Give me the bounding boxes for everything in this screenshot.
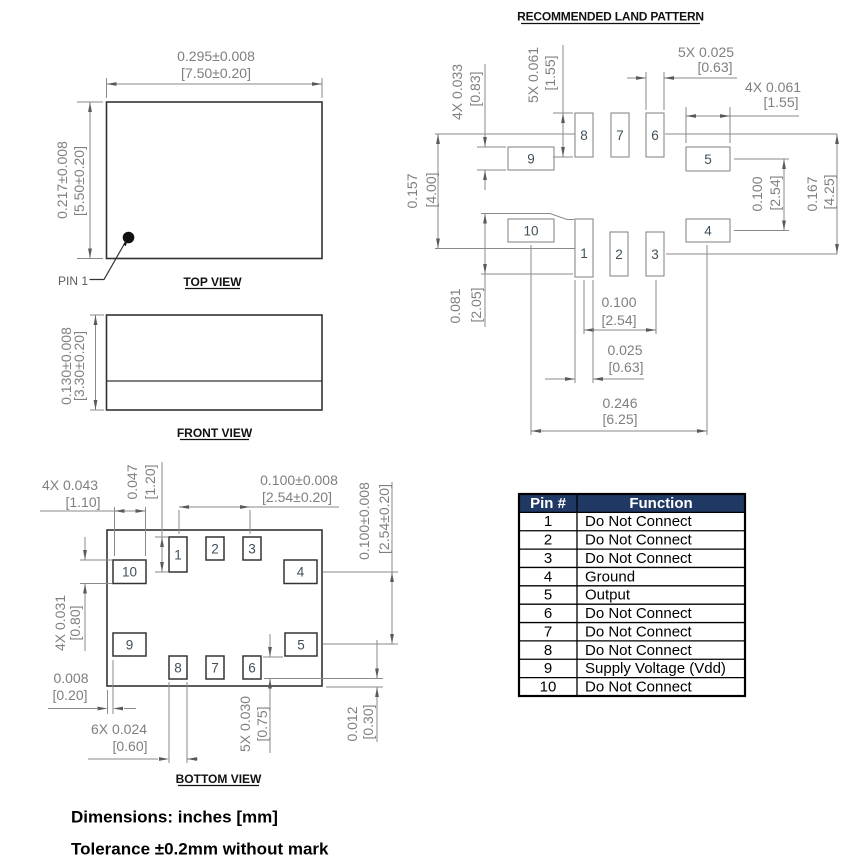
svg-text:4X 0.033: 4X 0.033 bbox=[449, 64, 465, 120]
svg-text:[0.60]: [0.60] bbox=[112, 738, 147, 754]
svg-text:0.100±0.008: 0.100±0.008 bbox=[356, 482, 372, 560]
svg-text:10: 10 bbox=[122, 565, 137, 580]
svg-text:5X 0.061: 5X 0.061 bbox=[525, 47, 541, 103]
svg-text:Do Not Connect: Do Not Connect bbox=[585, 605, 693, 622]
svg-text:5X 0.030: 5X 0.030 bbox=[237, 696, 253, 752]
svg-text:7: 7 bbox=[616, 128, 624, 143]
svg-text:[1.10]: [1.10] bbox=[65, 494, 100, 510]
svg-text:8: 8 bbox=[174, 660, 182, 675]
svg-text:Do Not Connect: Do Not Connect bbox=[585, 513, 693, 530]
svg-text:[2.54±0.20]: [2.54±0.20] bbox=[262, 489, 332, 505]
svg-text:0.025: 0.025 bbox=[607, 342, 642, 358]
svg-text:Output: Output bbox=[585, 587, 631, 604]
svg-text:[3.30±0.20]: [3.30±0.20] bbox=[71, 331, 87, 401]
svg-text:5: 5 bbox=[544, 587, 552, 604]
svg-text:9: 9 bbox=[126, 637, 134, 652]
svg-text:[1.20]: [1.20] bbox=[142, 464, 158, 499]
svg-text:0.295±0.008: 0.295±0.008 bbox=[177, 48, 255, 64]
svg-text:5: 5 bbox=[704, 152, 712, 167]
svg-text:0.008: 0.008 bbox=[53, 670, 88, 686]
svg-text:Do Not Connect: Do Not Connect bbox=[585, 550, 693, 567]
svg-text:FRONT VIEW: FRONT VIEW bbox=[177, 426, 253, 440]
svg-text:[1.55]: [1.55] bbox=[542, 55, 558, 90]
svg-text:Supply Voltage (Vdd): Supply Voltage (Vdd) bbox=[585, 660, 726, 677]
svg-text:[0.75]: [0.75] bbox=[254, 706, 270, 741]
svg-text:Do Not Connect: Do Not Connect bbox=[585, 642, 693, 659]
svg-text:0.047: 0.047 bbox=[124, 464, 140, 499]
svg-text:10: 10 bbox=[540, 679, 557, 696]
svg-text:2: 2 bbox=[615, 247, 623, 262]
svg-text:[2.54±0.20]: [2.54±0.20] bbox=[376, 484, 392, 554]
svg-text:8: 8 bbox=[544, 642, 552, 659]
svg-text:0.012: 0.012 bbox=[344, 706, 360, 741]
svg-text:[1.55]: [1.55] bbox=[763, 94, 798, 110]
svg-text:0.246: 0.246 bbox=[602, 395, 637, 411]
svg-text:1: 1 bbox=[580, 246, 588, 261]
svg-text:6X 0.024: 6X 0.024 bbox=[91, 721, 147, 737]
svg-text:4: 4 bbox=[544, 568, 552, 585]
svg-text:Tolerance ±0.2mm without mark: Tolerance ±0.2mm without mark bbox=[71, 840, 329, 859]
svg-text:10: 10 bbox=[523, 223, 538, 238]
svg-text:[7.50±0.20]: [7.50±0.20] bbox=[181, 65, 251, 81]
svg-text:Dimensions: inches [mm]: Dimensions: inches [mm] bbox=[71, 808, 278, 827]
svg-text:[4.25]: [4.25] bbox=[821, 174, 837, 209]
svg-text:4: 4 bbox=[297, 565, 305, 580]
svg-text:5: 5 bbox=[297, 637, 305, 652]
svg-text:9: 9 bbox=[527, 151, 535, 166]
svg-text:[0.30]: [0.30] bbox=[360, 704, 376, 739]
svg-text:3: 3 bbox=[651, 247, 659, 262]
svg-text:4X 0.043: 4X 0.043 bbox=[42, 477, 98, 493]
svg-text:[0.80]: [0.80] bbox=[67, 605, 83, 640]
svg-text:0.167: 0.167 bbox=[804, 176, 820, 211]
svg-text:7: 7 bbox=[211, 660, 219, 675]
svg-text:2: 2 bbox=[544, 532, 552, 549]
svg-text:4X 0.061: 4X 0.061 bbox=[745, 79, 801, 95]
svg-text:3: 3 bbox=[544, 550, 552, 567]
svg-text:Function: Function bbox=[629, 495, 692, 512]
svg-text:RECOMMENDED LAND PATTERN: RECOMMENDED LAND PATTERN bbox=[517, 10, 704, 24]
svg-text:[6.25]: [6.25] bbox=[602, 411, 637, 427]
svg-text:TOP VIEW: TOP VIEW bbox=[183, 275, 242, 289]
svg-text:1: 1 bbox=[174, 547, 182, 562]
svg-text:4X 0.031: 4X 0.031 bbox=[52, 595, 68, 651]
svg-text:7: 7 bbox=[544, 623, 552, 640]
svg-text:Do Not Connect: Do Not Connect bbox=[585, 623, 693, 640]
svg-text:Pin #: Pin # bbox=[530, 495, 567, 512]
svg-text:[2.05]: [2.05] bbox=[468, 287, 484, 322]
svg-text:2: 2 bbox=[211, 541, 219, 556]
svg-text:4: 4 bbox=[704, 223, 712, 238]
svg-text:[0.20]: [0.20] bbox=[52, 687, 87, 703]
svg-text:0.081: 0.081 bbox=[447, 288, 463, 323]
svg-text:6: 6 bbox=[651, 128, 659, 143]
svg-text:6: 6 bbox=[544, 605, 552, 622]
svg-text:0.100: 0.100 bbox=[601, 294, 636, 310]
svg-text:0.157: 0.157 bbox=[404, 173, 420, 208]
svg-text:0.100: 0.100 bbox=[749, 176, 765, 211]
svg-text:Do Not Connect: Do Not Connect bbox=[585, 679, 693, 696]
svg-text:[0.63]: [0.63] bbox=[697, 59, 732, 75]
svg-text:[2.54]: [2.54] bbox=[767, 175, 783, 210]
svg-text:9: 9 bbox=[544, 660, 552, 677]
svg-text:[0.83]: [0.83] bbox=[467, 71, 483, 106]
svg-text:5X 0.025: 5X 0.025 bbox=[678, 44, 734, 60]
svg-text:0.100±0.008: 0.100±0.008 bbox=[260, 472, 338, 488]
svg-text:[4.00]: [4.00] bbox=[423, 172, 439, 207]
svg-text:1: 1 bbox=[544, 513, 552, 530]
svg-text:[5.50±0.20]: [5.50±0.20] bbox=[71, 146, 87, 216]
svg-text:Ground: Ground bbox=[585, 568, 635, 585]
svg-text:[2.54]: [2.54] bbox=[601, 312, 636, 328]
svg-text:Do Not Connect: Do Not Connect bbox=[585, 532, 693, 549]
svg-text:3: 3 bbox=[248, 541, 256, 556]
svg-text:0.217±0.008: 0.217±0.008 bbox=[54, 141, 70, 219]
svg-text:BOTTOM VIEW: BOTTOM VIEW bbox=[176, 772, 262, 786]
svg-text:PIN 1: PIN 1 bbox=[58, 274, 88, 288]
svg-text:8: 8 bbox=[580, 128, 588, 143]
svg-text:6: 6 bbox=[248, 660, 256, 675]
svg-text:[0.63]: [0.63] bbox=[608, 359, 643, 375]
